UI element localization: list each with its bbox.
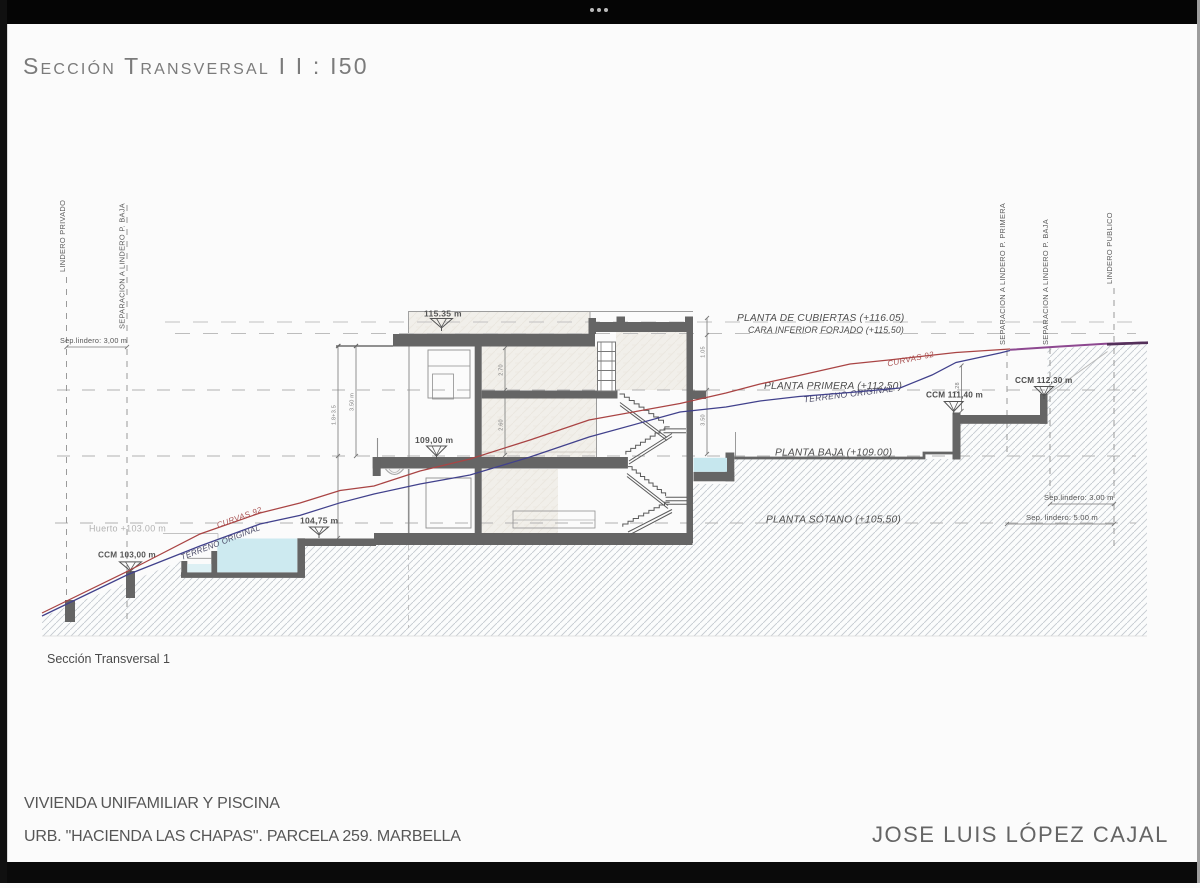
svg-text:PLANTA SÓTANO (+105.50): PLANTA SÓTANO (+105.50) bbox=[766, 513, 901, 526]
svg-text:PLANTA DE CUBIERTAS (+116.05): PLANTA DE CUBIERTAS (+116.05) bbox=[737, 313, 904, 324]
svg-text:SEPARACION A LINDERO P. BAJA: SEPARACION A LINDERO P. BAJA bbox=[118, 203, 127, 329]
svg-text:Sep.lindero: 3.00 m: Sep.lindero: 3.00 m bbox=[1044, 493, 1114, 502]
svg-text:CCM 111,40 m: CCM 111,40 m bbox=[926, 391, 983, 400]
svg-text:1.8+3.5: 1.8+3.5 bbox=[332, 405, 338, 425]
svg-text:CCM 112,30 m: CCM 112,30 m bbox=[1015, 376, 1072, 385]
svg-text:Sep.lindero: 3,00 m: Sep.lindero: 3,00 m bbox=[60, 336, 127, 345]
svg-text:1.05: 1.05 bbox=[701, 346, 707, 358]
svg-text:LINDERO PUBLICO: LINDERO PUBLICO bbox=[1105, 212, 1114, 284]
svg-text:Sep. lindero: 5.00 m: Sep. lindero: 5.00 m bbox=[1026, 513, 1098, 522]
svg-text:104,75 m: 104,75 m bbox=[300, 516, 338, 526]
svg-text:LINDERO PRIVADO: LINDERO PRIVADO bbox=[58, 200, 67, 272]
svg-text:PLANTA BAJA (+109.00): PLANTA BAJA (+109.00) bbox=[775, 448, 892, 459]
svg-text:2.60: 2.60 bbox=[499, 419, 505, 431]
svg-text:3.50: 3.50 bbox=[701, 414, 707, 426]
svg-text:SEPARACION A LINDERO P. BAJA: SEPARACION A LINDERO P. BAJA bbox=[1041, 219, 1050, 345]
svg-text:CCM 103,00 m: CCM 103,00 m bbox=[98, 551, 156, 560]
svg-text:2.70: 2.70 bbox=[499, 364, 505, 376]
svg-text:SEPARACION A LINDERO P. PRIMER: SEPARACION A LINDERO P. PRIMERA bbox=[998, 203, 1007, 345]
svg-text:109,00 m: 109,00 m bbox=[415, 435, 453, 445]
svg-text:Huerto +103.00 m: Huerto +103.00 m bbox=[89, 524, 166, 534]
svg-text:CARA INFERIOR FORJADO (+115.50: CARA INFERIOR FORJADO (+115.50) bbox=[748, 325, 904, 335]
svg-text:3.50 m: 3.50 m bbox=[350, 393, 356, 411]
svg-text:115.35 m: 115.35 m bbox=[424, 309, 462, 319]
